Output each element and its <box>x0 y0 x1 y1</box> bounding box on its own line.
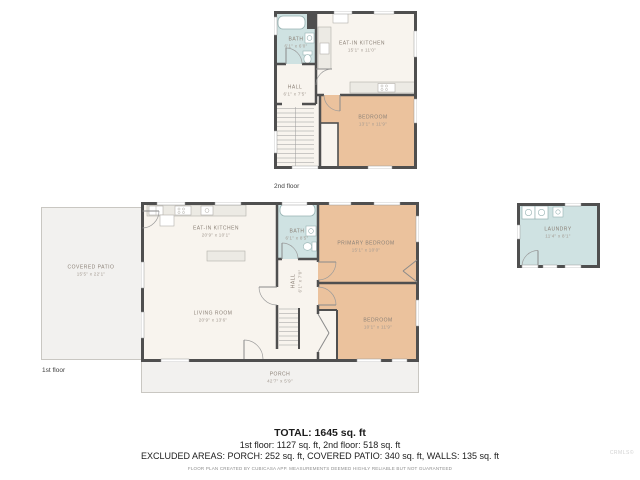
room-dims: 6'1" x 8'5" <box>286 236 309 242</box>
covered-patio-area <box>41 207 142 360</box>
washer-dryer-icon <box>522 206 548 219</box>
room-label-patio: COVERED PATIO 15'5" x 22'1" <box>68 265 115 278</box>
room-name: EAT-IN KITCHEN <box>339 41 385 47</box>
room-name: PORCH <box>267 372 293 378</box>
room-label-kitchen-1f: EAT-IN KITCHEN 20'9" x 10'1" <box>193 226 239 239</box>
chimney-block <box>307 12 317 29</box>
floor-tag-1st: 1st floor <box>42 367 65 374</box>
room-name: HALL <box>284 85 307 91</box>
room-name: BEDROOM <box>363 318 392 324</box>
room-name: EAT-IN KITCHEN <box>193 226 239 232</box>
room-name: BATH <box>286 229 309 235</box>
room-label-primary-bedroom: PRIMARY BEDROOM 15'1" x 10'0" <box>337 241 394 254</box>
room-label-bedroom-1f: BEDROOM 10'1" x 11'9" <box>363 318 392 331</box>
floorplan-page: BATH 6'1" x 6'0" EAT-IN KITCHEN 15'1" x … <box>0 0 640 480</box>
room-label-bedroom-2f: BEDROOM 13'1" x 11'9" <box>358 115 387 128</box>
room-name: PRIMARY BEDROOM <box>337 241 394 247</box>
room-name: COVERED PATIO <box>68 265 115 271</box>
closet-2f <box>320 123 338 167</box>
room-label-living-room: LIVING ROOM 20'9" x 13'6" <box>194 311 233 324</box>
floor-tag-2nd: 2nd floor <box>274 183 299 190</box>
room-name: LIVING ROOM <box>194 311 233 317</box>
room-dims: 13'1" x 11'9" <box>358 122 387 128</box>
room-dims: 15'1" x 11'0" <box>339 48 385 54</box>
total-area-text: TOTAL: 1645 sq. ft <box>0 427 640 439</box>
room-label-bath-1f: BATH 6'1" x 8'5" <box>286 229 309 242</box>
room-label-kitchen-2f: EAT-IN KITCHEN 15'1" x 11'0" <box>339 41 385 54</box>
room-dims: 20'9" x 13'6" <box>194 318 233 324</box>
room-dims: 6'1" x 7'0" <box>298 270 304 293</box>
room-dims: 6'1" x 7'5" <box>284 92 307 98</box>
summary-block: TOTAL: 1645 sq. ft 1st floor: 1127 sq. f… <box>0 427 640 471</box>
room-label-laundry: LAUNDRY 11'4" x 8'1" <box>544 227 571 240</box>
room-name: LAUNDRY <box>544 227 571 233</box>
room-dims: 15'5" x 22'1" <box>68 272 115 278</box>
room-dims: 42'7" x 5'9" <box>267 379 293 385</box>
room-dims: 20'9" x 10'1" <box>193 233 239 239</box>
kitchen-island <box>207 251 245 261</box>
room-label-porch: PORCH 42'7" x 5'9" <box>267 372 293 385</box>
bathtub-icon <box>280 204 315 216</box>
room-label-bath-2f: BATH 6'1" x 6'0" <box>285 37 308 50</box>
room-name: HALL <box>291 270 297 293</box>
watermark-text: CRMLS© <box>610 450 634 456</box>
room-name: BEDROOM <box>358 115 387 121</box>
room-dims: 11'4" x 8'1" <box>544 234 571 240</box>
disclaimer-text: FLOOR PLAN CREATED BY CUBICASA APP. MEAS… <box>0 466 640 471</box>
excluded-areas-text: EXCLUDED AREAS: PORCH: 252 sq. ft, COVER… <box>0 451 640 461</box>
room-dims: 10'1" x 11'9" <box>363 325 392 331</box>
floor-plan-1st <box>141 202 419 362</box>
floor-areas-text: 1st floor: 1127 sq. ft, 2nd floor: 518 s… <box>0 440 640 450</box>
room-label-hall-2f: HALL 6'1" x 7'5" <box>284 85 307 98</box>
room-name: BATH <box>285 37 308 43</box>
sink-icon <box>553 207 563 217</box>
room-label-hall-1f: HALL 6'1" x 7'0" <box>291 270 304 293</box>
toilet-icon <box>303 51 312 63</box>
room-dims: 15'1" x 10'0" <box>337 248 394 254</box>
toilet-icon <box>303 242 316 251</box>
bathtub-icon <box>278 16 305 29</box>
room-dims: 6'1" x 6'0" <box>285 44 308 50</box>
